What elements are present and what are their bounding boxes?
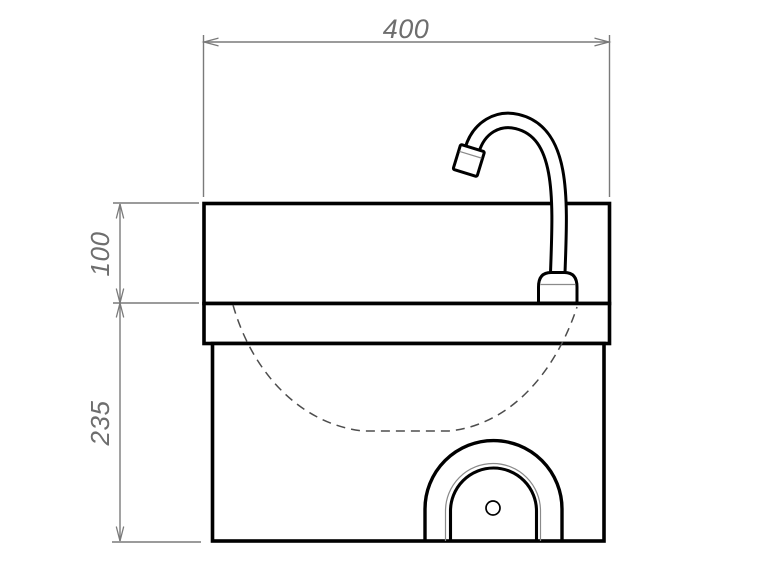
basin-rim-apron (204, 304, 610, 344)
dim-label-upper-height: 100 (85, 232, 115, 277)
faucet-nozzle-body (453, 144, 485, 176)
dim-label-lower-height: 235 (85, 401, 115, 447)
technical-drawing-sheet: 400 100 235 (0, 0, 768, 576)
washbasin-elevation-drawing: 400 100 235 (0, 0, 768, 576)
dim-label-top-width: 400 (383, 14, 430, 44)
faucet-base (539, 273, 578, 304)
dimension-left-heights: 100 235 (85, 203, 201, 542)
cabinet-body (213, 344, 605, 542)
faucet-nozzle (453, 144, 485, 176)
